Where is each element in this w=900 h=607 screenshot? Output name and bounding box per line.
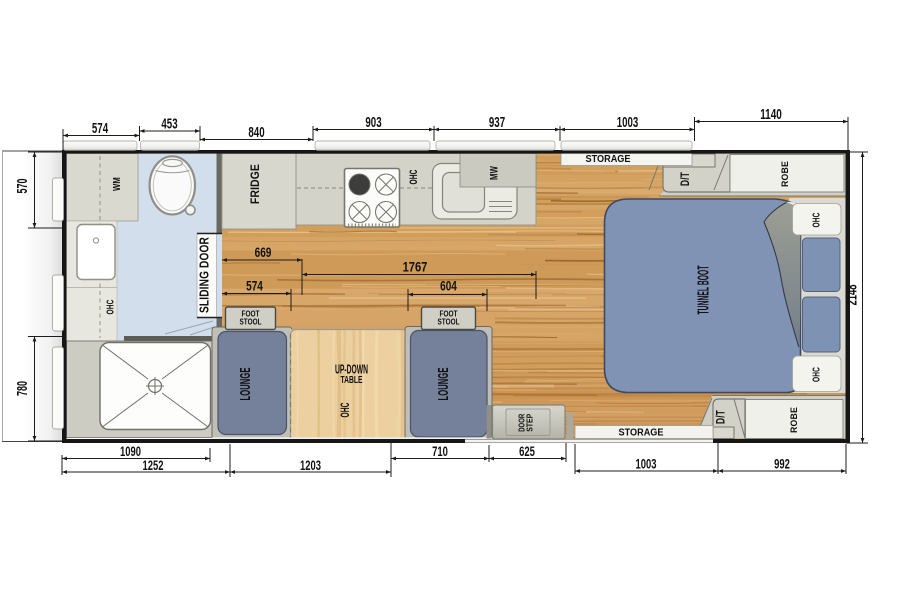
svg-text:OHC: OHC <box>812 213 823 228</box>
svg-text:ROBE: ROBE <box>780 161 791 187</box>
svg-text:D/T: D/T <box>716 410 728 424</box>
svg-text:2148: 2148 <box>844 285 861 306</box>
svg-text:OHC: OHC <box>812 367 823 382</box>
svg-text:D/T: D/T <box>680 172 692 186</box>
svg-text:1090: 1090 <box>120 444 141 459</box>
svg-text:TABLE: TABLE <box>341 374 363 386</box>
svg-text:992: 992 <box>774 457 790 472</box>
svg-text:1252: 1252 <box>143 458 164 473</box>
svg-text:937: 937 <box>489 114 505 131</box>
svg-text:STOOL: STOOL <box>438 318 460 327</box>
svg-text:570: 570 <box>14 179 31 194</box>
svg-text:1203: 1203 <box>300 458 321 473</box>
svg-text:WM: WM <box>112 177 123 191</box>
svg-text:574: 574 <box>246 279 263 294</box>
svg-text:780: 780 <box>14 381 31 396</box>
svg-text:STORAGE: STORAGE <box>586 154 631 165</box>
svg-text:STEP: STEP <box>526 413 535 432</box>
svg-text:TUNNEL BOOT: TUNNEL BOOT <box>696 265 713 314</box>
svg-text:MW: MW <box>489 166 501 180</box>
svg-text:OHC: OHC <box>106 300 117 315</box>
svg-text:1003: 1003 <box>617 114 639 131</box>
svg-text:1003: 1003 <box>636 457 657 472</box>
svg-text:453: 453 <box>161 116 177 133</box>
svg-text:1140: 1140 <box>760 106 782 123</box>
svg-text:604: 604 <box>440 279 457 294</box>
svg-text:669: 669 <box>255 245 272 260</box>
svg-text:FRIDGE: FRIDGE <box>250 164 262 204</box>
svg-text:840: 840 <box>248 124 264 141</box>
svg-text:ROBE: ROBE <box>789 407 800 433</box>
svg-text:OHC: OHC <box>408 170 420 185</box>
svg-text:LOUNGE: LOUNGE <box>237 368 254 401</box>
svg-text:1767: 1767 <box>403 260 428 275</box>
svg-text:574: 574 <box>92 120 109 137</box>
svg-text:LOUNGE: LOUNGE <box>435 368 452 401</box>
svg-text:625: 625 <box>519 444 535 459</box>
svg-text:710: 710 <box>432 444 448 459</box>
svg-text:SLIDING DOOR: SLIDING DOOR <box>198 237 212 313</box>
svg-text:903: 903 <box>365 114 381 131</box>
svg-text:OHC: OHC <box>338 402 352 417</box>
svg-text:STORAGE: STORAGE <box>619 428 664 439</box>
svg-text:STOOL: STOOL <box>240 318 262 327</box>
